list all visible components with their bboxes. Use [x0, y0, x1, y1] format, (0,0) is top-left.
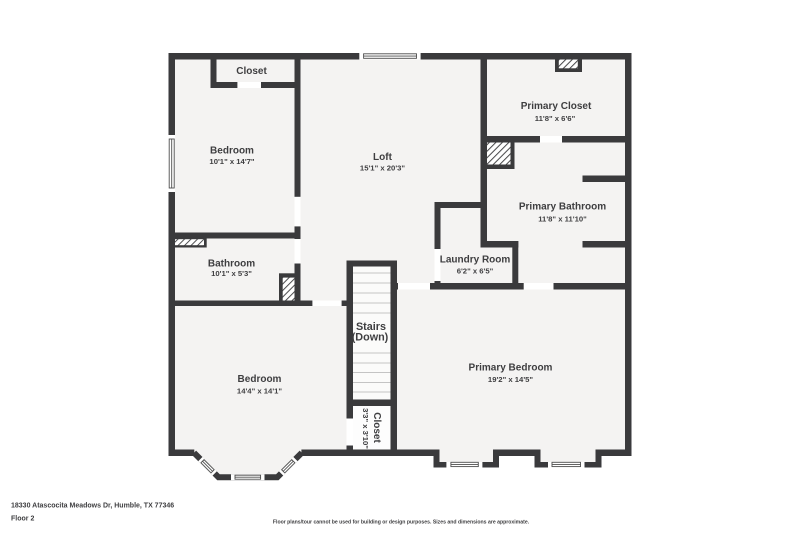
- svg-text:Primary Bathroom: Primary Bathroom: [519, 202, 606, 213]
- svg-text:3'3" x 3'10": 3'3" x 3'10": [361, 408, 370, 449]
- svg-text:Floor 2: Floor 2: [11, 516, 34, 523]
- svg-text:Bedroom: Bedroom: [238, 374, 282, 385]
- svg-text:Closet: Closet: [371, 412, 382, 443]
- svg-text:15'1" x 20'3": 15'1" x 20'3": [360, 164, 406, 173]
- svg-text:Floor plans/tour cannot be use: Floor plans/tour cannot be used for buil…: [273, 520, 530, 526]
- svg-text:(Down): (Down): [352, 332, 389, 344]
- svg-text:10'1" x 5'3": 10'1" x 5'3": [211, 269, 252, 278]
- svg-text:Bedroom: Bedroom: [210, 146, 254, 157]
- svg-text:10'1" x 14'7": 10'1" x 14'7": [209, 157, 255, 166]
- svg-text:Laundry Room: Laundry Room: [440, 255, 511, 266]
- svg-text:Bathroom: Bathroom: [208, 259, 255, 270]
- svg-text:Loft: Loft: [373, 152, 393, 163]
- svg-text:18330 Atascocita Meadows Dr, H: 18330 Atascocita Meadows Dr, Humble, TX …: [11, 503, 174, 510]
- svg-text:Primary Bedroom: Primary Bedroom: [469, 363, 553, 374]
- svg-text:6'2" x 6'5": 6'2" x 6'5": [457, 266, 494, 275]
- svg-text:Closet: Closet: [236, 66, 267, 77]
- svg-text:Primary Closet: Primary Closet: [521, 101, 592, 112]
- svg-text:19'2" x 14'5": 19'2" x 14'5": [488, 375, 534, 384]
- svg-text:11'8" x 11'10": 11'8" x 11'10": [538, 215, 587, 224]
- svg-text:14'4" x 14'1": 14'4" x 14'1": [237, 387, 283, 396]
- svg-text:11'8" x 6'6": 11'8" x 6'6": [535, 114, 576, 123]
